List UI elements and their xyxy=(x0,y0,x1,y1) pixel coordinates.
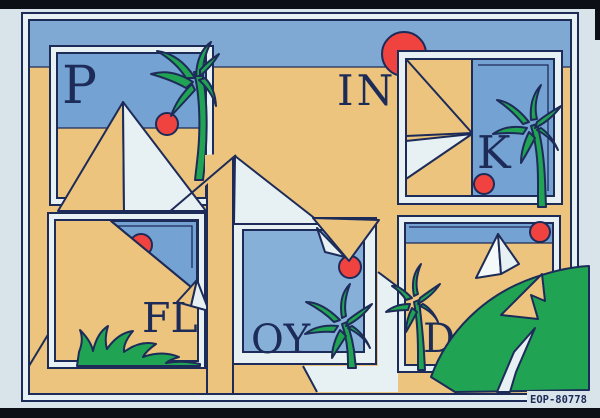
panel-k: K xyxy=(398,51,562,207)
sun-icon xyxy=(156,113,178,135)
letter-oy: OY xyxy=(251,317,311,363)
letter-fl: FL xyxy=(142,294,198,342)
artwork-photo: IN P K xyxy=(0,0,600,418)
sun-icon xyxy=(530,222,550,242)
sun-icon xyxy=(474,174,494,194)
photo-bottom-edge xyxy=(0,408,600,418)
code-label: EOP-80778 xyxy=(530,394,587,406)
panel-p: P xyxy=(50,42,219,211)
letter-p: P xyxy=(62,56,97,116)
photo-corner-edge xyxy=(595,0,600,40)
column xyxy=(207,158,233,394)
photo-top-edge xyxy=(0,0,600,9)
panel-fl: FL xyxy=(48,213,209,368)
catalog-code: EOP-80778 xyxy=(527,391,588,406)
pink-floyd-illustration: IN P K xyxy=(0,0,600,418)
letter-in: IN xyxy=(337,66,396,115)
